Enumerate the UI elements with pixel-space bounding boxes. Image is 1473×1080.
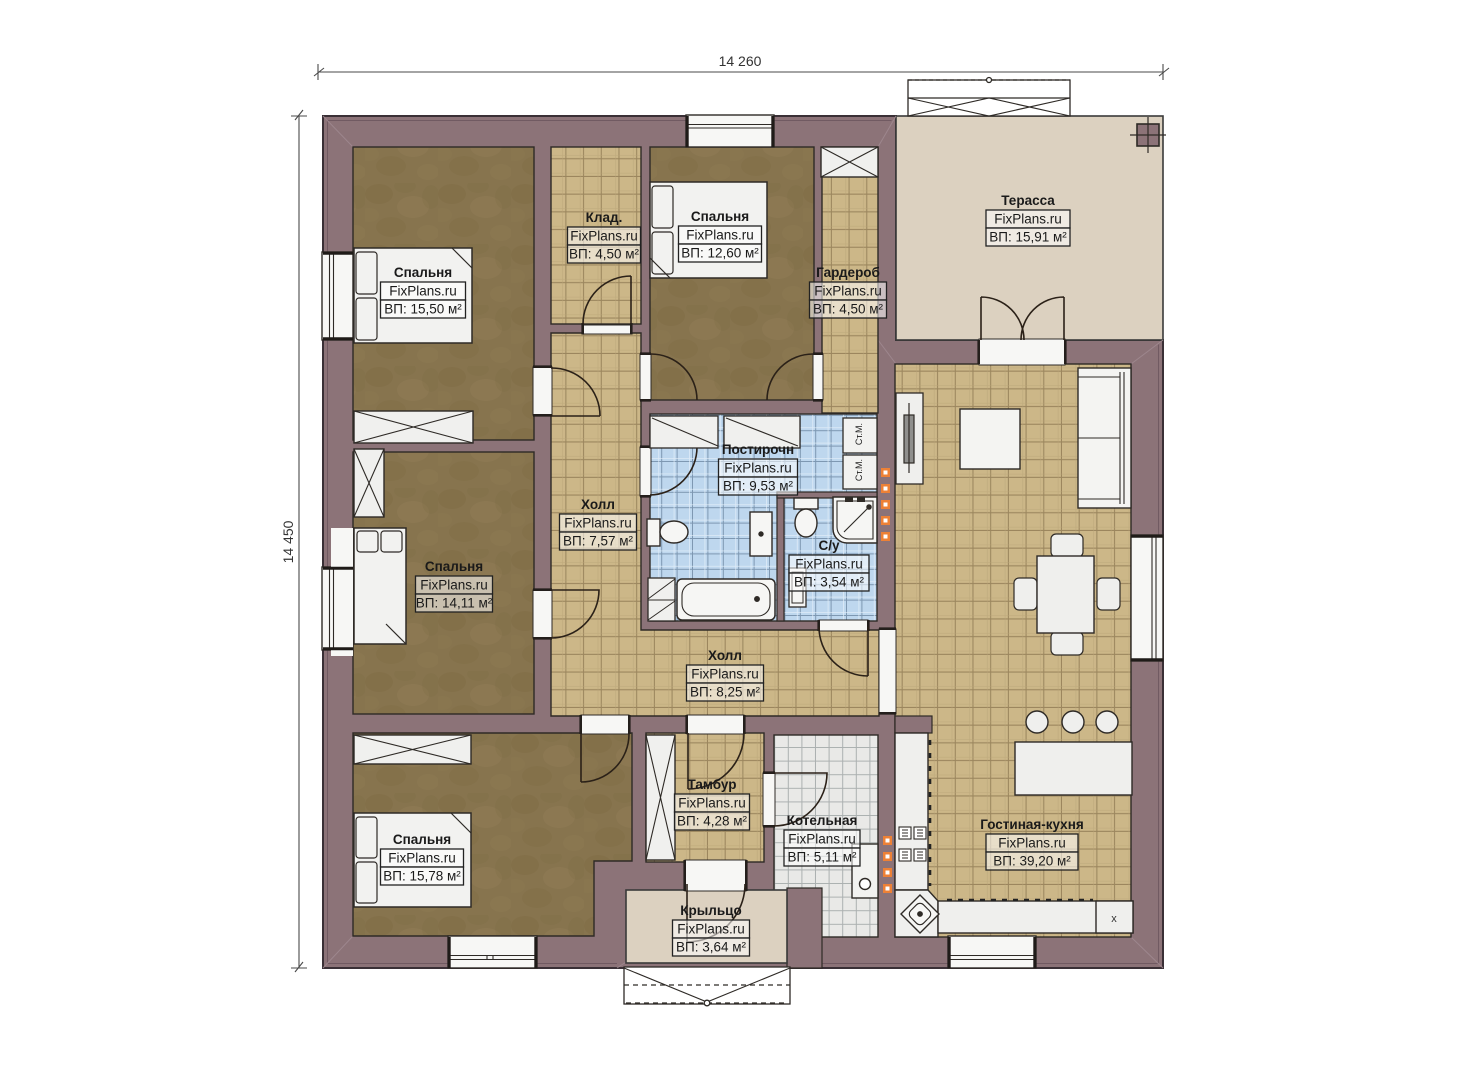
- svg-text:ВП: 8,25 м²: ВП: 8,25 м²: [690, 685, 761, 700]
- svg-text:Котельная: Котельная: [787, 813, 858, 828]
- svg-text:FixPlans.ru: FixPlans.ru: [389, 284, 457, 299]
- svg-text:Ст.М.: Ст.М.: [854, 459, 864, 481]
- svg-text:ВП: 5,11 м²: ВП: 5,11 м²: [787, 850, 857, 865]
- svg-text:FixPlans.ru: FixPlans.ru: [677, 922, 745, 937]
- svg-text:Гостиная-кухня: Гостиная-кухня: [980, 817, 1083, 832]
- svg-text:FixPlans.ru: FixPlans.ru: [788, 832, 856, 847]
- svg-text:Холл: Холл: [581, 497, 615, 512]
- svg-text:Спальня: Спальня: [393, 832, 451, 847]
- svg-text:ВП: 3,64 м²: ВП: 3,64 м²: [676, 940, 747, 955]
- svg-text:x: x: [1111, 913, 1117, 925]
- svg-text:FixPlans.ru: FixPlans.ru: [691, 667, 759, 682]
- svg-text:Спальня: Спальня: [425, 559, 483, 574]
- svg-text:ВП: 3,54 м²: ВП: 3,54 м²: [794, 575, 865, 590]
- svg-text:Клад.: Клад.: [586, 210, 623, 225]
- svg-text:FixPlans.ru: FixPlans.ru: [998, 836, 1066, 851]
- svg-text:ВП: 15,78 м²: ВП: 15,78 м²: [383, 869, 461, 884]
- svg-text:ВП: 14,11 м²: ВП: 14,11 м²: [416, 596, 493, 611]
- svg-text:ВП: 4,50 м²: ВП: 4,50 м²: [813, 302, 884, 317]
- svg-text:ВП: 15,91 м²: ВП: 15,91 м²: [989, 230, 1067, 245]
- svg-text:Спальня: Спальня: [691, 209, 749, 224]
- svg-text:Гардероб: Гардероб: [816, 265, 880, 280]
- svg-text:14 260: 14 260: [719, 53, 762, 69]
- svg-text:ВП: 39,20 м²: ВП: 39,20 м²: [993, 854, 1071, 869]
- svg-text:С/у: С/у: [818, 538, 840, 553]
- svg-text:Терасса: Терасса: [1001, 193, 1055, 208]
- svg-text:FixPlans.ru: FixPlans.ru: [724, 461, 792, 476]
- svg-text:FixPlans.ru: FixPlans.ru: [420, 578, 488, 593]
- svg-text:FixPlans.ru: FixPlans.ru: [564, 516, 632, 531]
- svg-text:ВП: 4,50 м²: ВП: 4,50 м²: [569, 247, 640, 262]
- svg-text:FixPlans.ru: FixPlans.ru: [814, 284, 882, 299]
- svg-text:14 450: 14 450: [280, 520, 296, 563]
- svg-text:ВП: 4,28 м²: ВП: 4,28 м²: [677, 814, 748, 829]
- svg-text:ВП: 12,60 м²: ВП: 12,60 м²: [681, 246, 759, 261]
- svg-text:FixPlans.ru: FixPlans.ru: [678, 796, 746, 811]
- svg-text:Холл: Холл: [708, 648, 742, 663]
- svg-text:Ст.М.: Ст.М.: [854, 423, 864, 445]
- svg-text:Постирочн: Постирочн: [722, 442, 794, 457]
- svg-text:ВП: 7,57 м²: ВП: 7,57 м²: [563, 534, 634, 549]
- svg-text:ВП: 15,50 м²: ВП: 15,50 м²: [384, 302, 462, 317]
- svg-text:FixPlans.ru: FixPlans.ru: [388, 851, 456, 866]
- svg-text:FixPlans.ru: FixPlans.ru: [570, 229, 638, 244]
- svg-text:ВП: 9,53 м²: ВП: 9,53 м²: [723, 479, 794, 494]
- svg-text:Крыльцо: Крыльцо: [680, 903, 741, 918]
- svg-text:Спальня: Спальня: [394, 265, 452, 280]
- svg-text:FixPlans.ru: FixPlans.ru: [686, 228, 754, 243]
- svg-text:FixPlans.ru: FixPlans.ru: [795, 557, 863, 572]
- svg-text:Тамбур: Тамбур: [688, 777, 737, 792]
- svg-text:FixPlans.ru: FixPlans.ru: [994, 212, 1062, 227]
